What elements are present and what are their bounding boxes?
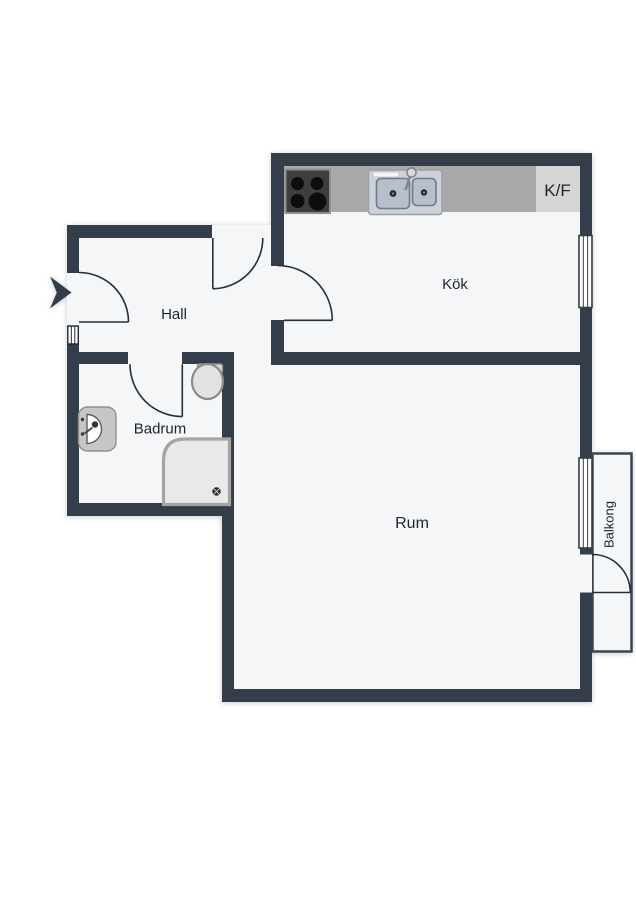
wall-left-of-rum (222, 352, 234, 689)
wall-badrum-top-right (182, 352, 234, 364)
window-symbol (579, 458, 592, 548)
wall-hall-top (67, 225, 212, 238)
fridge-freezer-label: K/F (544, 181, 570, 200)
wall-kitchen-bottom (271, 352, 592, 365)
shower-with-drain-icon (164, 439, 230, 505)
room-label-rum: Rum (395, 515, 429, 532)
wall-kitchen-left-upper (271, 153, 284, 266)
wall-badrum-left (67, 344, 79, 516)
wall-right-upper (580, 153, 592, 235)
floor-plan: Hall Kök Badrum Rum K/F Balkong (0, 0, 636, 900)
door-threshold-symbol (68, 326, 79, 344)
double-basin-sink-icon (369, 168, 443, 215)
wall-right-stub (580, 548, 592, 555)
room-label-kok: Kök (442, 276, 468, 293)
wall-kitchen-top (271, 153, 592, 166)
wall-badrum-top-left (67, 352, 128, 364)
balcony-floor (593, 454, 632, 652)
apartment-plan: Hall Kök Badrum Rum K/F Balkong (50, 153, 632, 702)
room-label-hall: Hall (161, 306, 187, 323)
floorplan-canvas: Hall Kök Badrum Rum K/F Balkong (0, 0, 636, 900)
stove-4-burner-icon (286, 170, 331, 214)
window-symbol (579, 236, 592, 308)
wall-right-lower (580, 593, 592, 703)
wall-bottom (222, 689, 592, 702)
washbasin-icon (79, 407, 117, 451)
room-label-balkong: Balkong (602, 501, 617, 548)
wall-right-mid (580, 308, 592, 458)
toilet-icon (192, 364, 223, 399)
room-label-badrum: Badrum (134, 421, 187, 438)
